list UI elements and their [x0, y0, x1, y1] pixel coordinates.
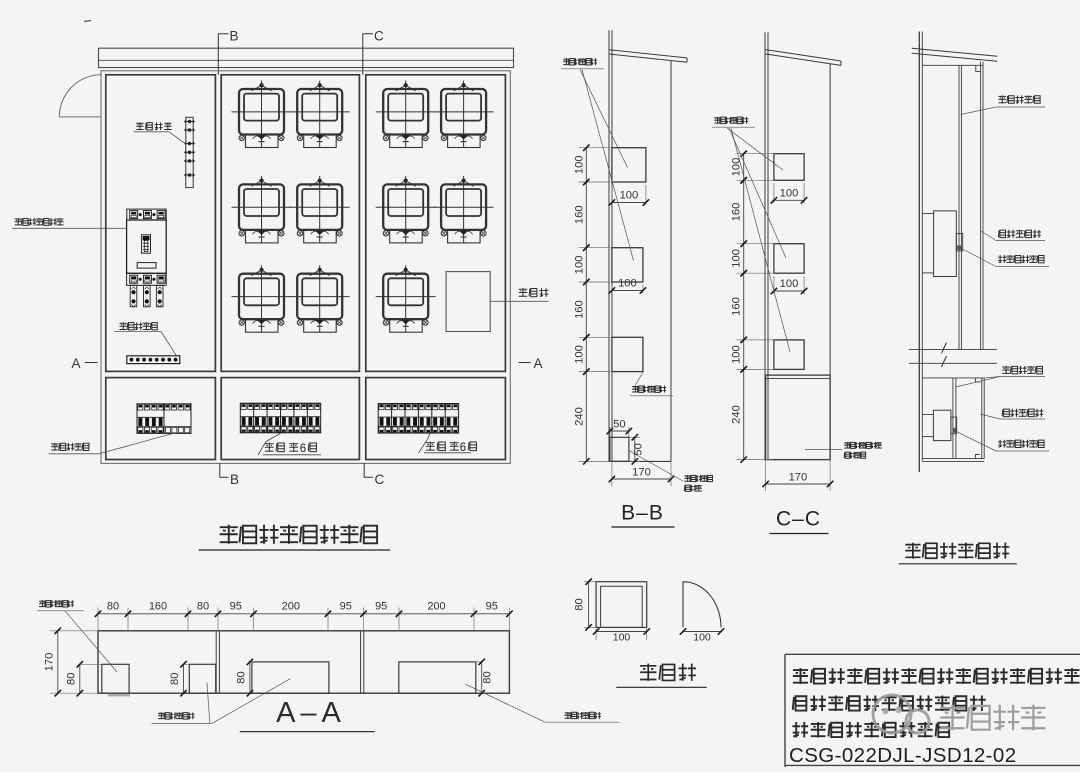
svg-text:80: 80 [574, 598, 586, 610]
svg-text:C: C [375, 472, 385, 487]
svg-text:80: 80 [169, 673, 181, 685]
svg-text:100: 100 [731, 249, 743, 268]
svg-text:95: 95 [486, 601, 498, 613]
svg-text:B–B: B–B [621, 502, 664, 525]
svg-text:A: A [71, 356, 80, 371]
svg-text:80: 80 [236, 671, 248, 683]
svg-text:170: 170 [44, 653, 56, 672]
svg-text:A: A [533, 356, 542, 371]
svg-text:100: 100 [780, 278, 799, 290]
svg-text:CSG-022DJL-JSD12-02: CSG-022DJL-JSD12-02 [789, 744, 1017, 767]
svg-text:100: 100 [620, 190, 639, 202]
svg-text:B: B [230, 472, 239, 487]
svg-text:100: 100 [780, 187, 799, 199]
svg-text:100: 100 [573, 256, 585, 275]
svg-text:C–C: C–C [776, 508, 821, 531]
svg-text:160: 160 [731, 203, 743, 222]
svg-text:160: 160 [731, 297, 743, 316]
svg-text:80: 80 [197, 601, 209, 613]
svg-text:95: 95 [340, 601, 352, 613]
svg-text:200: 200 [427, 601, 445, 613]
svg-text:80: 80 [107, 601, 119, 613]
svg-text:240: 240 [731, 405, 743, 424]
svg-text:A–A: A–A [276, 697, 346, 729]
svg-text:C: C [374, 29, 384, 44]
svg-text:100: 100 [573, 345, 585, 364]
svg-text:B: B [230, 29, 239, 44]
svg-text:95: 95 [375, 601, 387, 613]
svg-text:6: 6 [460, 442, 466, 454]
svg-text:160: 160 [573, 300, 585, 319]
svg-text:160: 160 [573, 205, 585, 224]
svg-text:160: 160 [149, 601, 167, 613]
svg-text:95: 95 [230, 601, 242, 613]
svg-text:100: 100 [731, 345, 743, 364]
svg-text:170: 170 [632, 467, 651, 479]
svg-text:100: 100 [573, 155, 585, 174]
svg-text:100: 100 [618, 278, 637, 290]
svg-text:100: 100 [613, 632, 631, 644]
svg-text:6: 6 [300, 443, 306, 455]
svg-text:170: 170 [789, 472, 808, 484]
svg-text:240: 240 [573, 407, 585, 426]
svg-text:100: 100 [731, 158, 743, 177]
svg-text:200: 200 [282, 601, 300, 613]
svg-text:80: 80 [66, 673, 78, 685]
svg-text:80: 80 [482, 671, 494, 683]
svg-text:50: 50 [613, 419, 625, 431]
svg-text:100: 100 [693, 632, 711, 644]
